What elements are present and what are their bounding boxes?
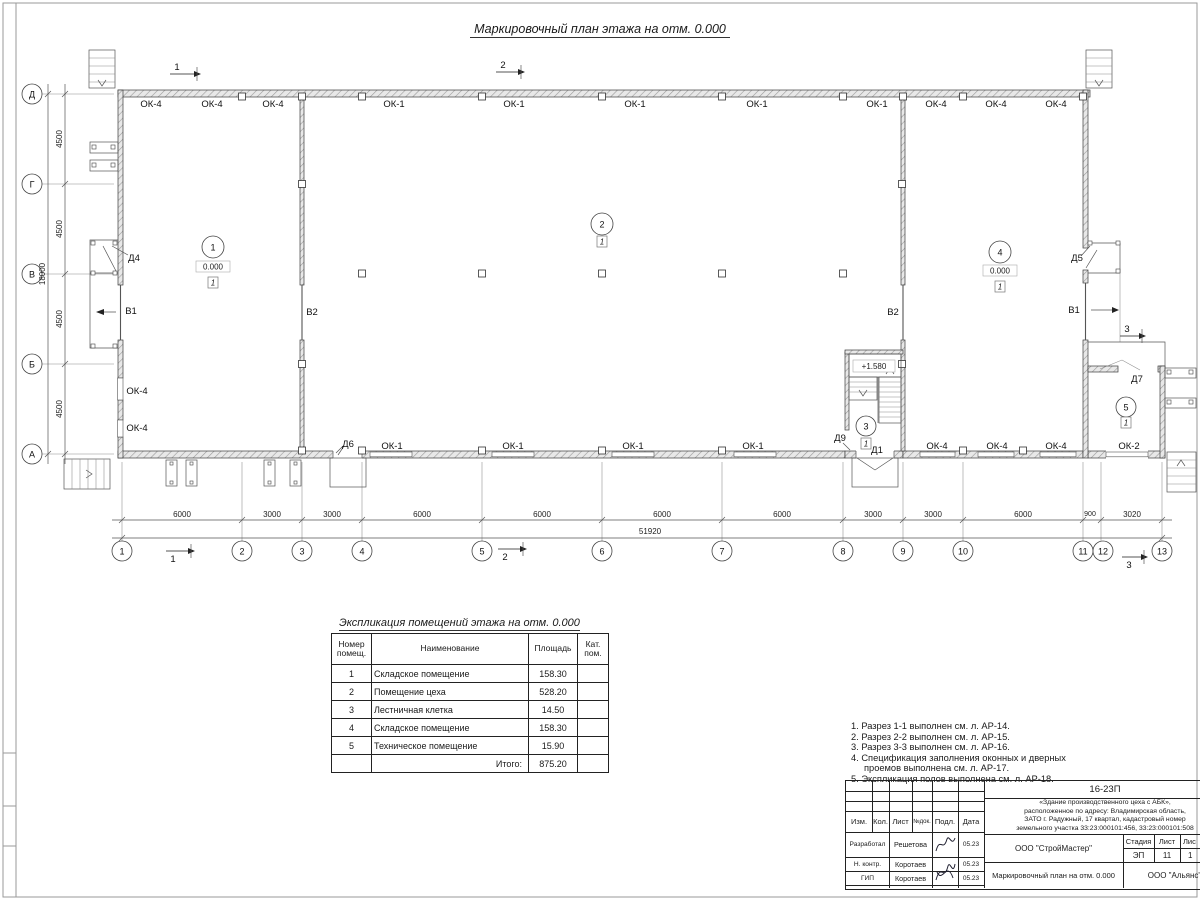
tb-listov-header: Лис bbox=[1180, 834, 1200, 848]
header-cat: Кат. пом. bbox=[578, 634, 609, 665]
cell-num: 4 bbox=[332, 719, 372, 737]
axis-bubbles-bottom: 1 2 3 4 5 6 7 8 9 10 11 12 13 bbox=[112, 541, 1172, 561]
exterior-stair-top-right bbox=[1086, 50, 1112, 88]
total-value: 875.20 bbox=[529, 755, 578, 773]
tb-name: Решетова bbox=[889, 832, 932, 857]
tb-stage-header: Стадия bbox=[1123, 834, 1154, 848]
tb-col-kol: Кол. bbox=[872, 811, 889, 832]
window-label: ОК-1 bbox=[502, 441, 523, 452]
dim-text: 6000 bbox=[653, 510, 671, 519]
cell-num: 5 bbox=[332, 737, 372, 755]
tb-sheet-title: Маркировочный план на отм. 0.000 bbox=[984, 862, 1123, 888]
signature-scribble bbox=[933, 858, 957, 886]
dim-text: 3020 bbox=[1123, 510, 1141, 519]
window-label: ОК-4 bbox=[126, 423, 147, 434]
axis-label: 7 bbox=[719, 547, 724, 557]
door-label: Д5 bbox=[1071, 253, 1083, 264]
room-number: 1 bbox=[210, 243, 215, 253]
door-label: Д6 bbox=[342, 439, 354, 450]
cell-name: Лестничная клетка bbox=[372, 701, 529, 719]
tb-date: 05.23 bbox=[958, 871, 984, 885]
window-label: ОК-1 bbox=[742, 441, 763, 452]
window-label: ОК-4 bbox=[262, 99, 283, 110]
cell-area: 14.50 bbox=[529, 701, 578, 719]
tb-col-ndoc: №док. bbox=[912, 811, 932, 832]
floor-type-mark: 1 bbox=[998, 283, 1002, 292]
title-block: Изм. Кол. Лист №док. Подл. Дата Разработ… bbox=[845, 780, 1200, 890]
axis-label: 6 bbox=[599, 547, 604, 557]
explication-table: Номер помещ. Наименование Площадь Кат. п… bbox=[331, 633, 609, 773]
tb-project-description: «Здание производственного цеха с АБК», р… bbox=[984, 799, 1200, 834]
axis-label: 2 bbox=[239, 547, 244, 557]
window-label: ОК-4 bbox=[126, 386, 147, 397]
dim-text: 4500 bbox=[55, 130, 64, 148]
room-number: 3 bbox=[863, 422, 868, 432]
notes-block: 1. Разрез 1-1 выполнен см. л. АР-14. 2. … bbox=[851, 721, 1066, 785]
dim-text: 900 bbox=[1084, 511, 1096, 518]
tb-description-line: ЗАТО г. Радужный, 17 квартал, кадастровы… bbox=[984, 816, 1200, 825]
section-mark-label: 3 bbox=[1126, 560, 1131, 571]
note-line: 3. Разрез 3-3 выполнен см. л. АР-16. bbox=[851, 742, 1066, 753]
plan-title: Маркировочный план этажа на отм. 0.000 bbox=[0, 22, 1200, 36]
gate-label: В2 bbox=[306, 307, 318, 318]
tb-col-podp: Подл. bbox=[932, 811, 958, 832]
cell-num: 2 bbox=[332, 683, 372, 701]
tb-col-izm: Изм. bbox=[846, 811, 872, 832]
window-label: ОК-1 bbox=[383, 99, 404, 110]
window-label: ОК-2 bbox=[1118, 441, 1139, 452]
dim-text: 6000 bbox=[1014, 510, 1032, 519]
tb-stage-value: ЭП bbox=[1123, 848, 1154, 862]
cell-name: Складское помещение bbox=[372, 665, 529, 683]
axis-label: 5 bbox=[479, 547, 484, 557]
floor-type-mark: 1 bbox=[211, 279, 215, 288]
dim-total-text: 51920 bbox=[639, 527, 662, 536]
cell-area: 528.20 bbox=[529, 683, 578, 701]
axis-label: 12 bbox=[1098, 547, 1108, 557]
cell-cat bbox=[578, 755, 609, 773]
room-markers: 1 0.000 1 2 1 3 1 4 0.000 1 5 1 +1.580 bbox=[196, 213, 1136, 449]
drawing-sheet: 1 2 3 1 2 3 1 2 3 4 5 6 7 8 9 10 11 12 1… bbox=[0, 0, 1200, 900]
axis-label: 4 bbox=[359, 547, 364, 557]
cell-num: 3 bbox=[332, 701, 372, 719]
axis-label: 10 bbox=[958, 547, 968, 557]
window-label: ОК-4 bbox=[201, 99, 222, 110]
tb-role: Разработал bbox=[846, 832, 889, 857]
section-mark-label: 1 bbox=[174, 62, 179, 73]
cell-cat bbox=[578, 719, 609, 737]
dim-text: 6000 bbox=[173, 510, 191, 519]
axis-label: 8 bbox=[840, 547, 845, 557]
cell-num: 1 bbox=[332, 665, 372, 683]
cell-name: Складское помещение bbox=[372, 719, 529, 737]
table-row: 3 Лестничная клетка 14.50 bbox=[332, 701, 609, 719]
table-total-row: Итого: 875.20 bbox=[332, 755, 609, 773]
window-label: ОК-4 bbox=[1045, 99, 1066, 110]
axis-label: Д bbox=[29, 90, 35, 100]
window-label: ОК-4 bbox=[926, 441, 947, 452]
gate-symbols bbox=[96, 283, 1119, 340]
table-row: 2 Помещение цеха 528.20 bbox=[332, 683, 609, 701]
window-label: ОК-1 bbox=[746, 99, 767, 110]
dim-text: 6000 bbox=[533, 510, 551, 519]
window-label: ОК-4 bbox=[140, 99, 161, 110]
axis-label: Г bbox=[30, 180, 35, 190]
exterior-stair-bottom-right bbox=[1167, 452, 1196, 492]
dim-text: 4500 bbox=[55, 400, 64, 418]
cell-num bbox=[332, 755, 372, 773]
floor-type-mark: 1 bbox=[864, 440, 868, 449]
right-vestibule bbox=[1081, 241, 1165, 370]
window-label: ОК-1 bbox=[381, 441, 402, 452]
dim-text: 4500 bbox=[55, 220, 64, 238]
room-number: 5 bbox=[1123, 403, 1128, 413]
axis-label: 9 bbox=[900, 547, 905, 557]
cell-name: Помещение цеха bbox=[372, 683, 529, 701]
room-number: 2 bbox=[599, 220, 604, 230]
exterior-elements bbox=[64, 50, 1196, 492]
floor-type-mark: 1 bbox=[1124, 419, 1128, 428]
cell-cat bbox=[578, 701, 609, 719]
tb-role: ГИП bbox=[846, 871, 889, 885]
window-label: ОК-4 bbox=[986, 441, 1007, 452]
tb-org2: ООО "Альянс" bbox=[1123, 862, 1200, 888]
axis-label: Б bbox=[29, 360, 35, 370]
tb-date: 05.23 bbox=[958, 832, 984, 857]
gate-label: В1 bbox=[125, 306, 137, 317]
tb-description-line: «Здание производственного цеха с АБК», bbox=[984, 799, 1200, 808]
cell-cat bbox=[578, 665, 609, 683]
table-row: 1 Складское помещение 158.30 bbox=[332, 665, 609, 683]
tb-name: Коротаев bbox=[889, 871, 932, 885]
explication-title-text: Экспликация помещений этажа на отм. 0.00… bbox=[339, 617, 580, 631]
note-line: 4. Спецификация заполнения оконных и две… bbox=[851, 753, 1066, 764]
window-label: ОК-1 bbox=[866, 99, 887, 110]
tb-name: Коротаев bbox=[889, 857, 932, 871]
tb-description-line: расположенное по адресу: Владимирская об… bbox=[984, 808, 1200, 817]
window-label: ОК-1 bbox=[503, 99, 524, 110]
dim-text: 3000 bbox=[864, 510, 882, 519]
window-label: ОК-1 bbox=[624, 99, 645, 110]
columns bbox=[239, 93, 1087, 454]
room-number: 4 bbox=[997, 248, 1002, 258]
tb-listov-value: 1 bbox=[1180, 848, 1200, 862]
section-mark-label: 2 bbox=[502, 552, 507, 563]
tb-doc-number: 16-23П bbox=[984, 781, 1200, 798]
gate-label: В2 bbox=[887, 307, 899, 318]
signature-scribble bbox=[933, 833, 957, 856]
dim-text: 3000 bbox=[263, 510, 281, 519]
level-mark: 0.000 bbox=[203, 263, 224, 272]
tb-col-data: Дата bbox=[958, 811, 984, 832]
table-header-row: Номер помещ. Наименование Площадь Кат. п… bbox=[332, 634, 609, 665]
axis-label: 3 bbox=[299, 547, 304, 557]
tb-list-header: Лист bbox=[1154, 834, 1180, 848]
axis-label: А bbox=[29, 450, 35, 460]
cell-cat bbox=[578, 683, 609, 701]
tb-org1: ООО "СтройМастер" bbox=[984, 834, 1123, 862]
window-label: ОК-4 bbox=[985, 99, 1006, 110]
exterior-stair-bottom-left bbox=[64, 459, 110, 489]
plan-title-text: Маркировочный план этажа на отм. 0.000 bbox=[470, 22, 730, 38]
tb-description-line: земельного участка 33:23:000101:456, 33:… bbox=[984, 825, 1200, 834]
explication-title: Экспликация помещений этажа на отм. 0.00… bbox=[331, 617, 588, 629]
tb-list-value: 11 bbox=[1154, 848, 1180, 862]
dim-total-text: 18000 bbox=[38, 262, 47, 285]
explication-table-block: Экспликация помещений этажа на отм. 0.00… bbox=[331, 617, 588, 773]
cell-name: Техническое помещение bbox=[372, 737, 529, 755]
table-row: 4 Складское помещение 158.30 bbox=[332, 719, 609, 737]
cell-area: 158.30 bbox=[529, 665, 578, 683]
floor-type-mark: 1 bbox=[600, 238, 604, 247]
axis-label: 11 bbox=[1078, 547, 1087, 557]
stair-level-mark: +1.580 bbox=[862, 362, 887, 371]
level-mark: 0.000 bbox=[990, 267, 1011, 276]
window-label: ОК-4 bbox=[1045, 441, 1066, 452]
door-labels: Д4 Д5 Д6 Д7 Д9 Д1 В1 В1 В2 В2 bbox=[125, 253, 1143, 456]
tb-date: 05.23 bbox=[958, 857, 984, 871]
tb-role: Н. контр. bbox=[846, 857, 889, 871]
axis-label: 1 bbox=[119, 547, 124, 557]
note-line: 1. Разрез 1-1 выполнен см. л. АР-14. bbox=[851, 721, 1066, 732]
axis-label: В bbox=[29, 270, 35, 280]
header-name: Наименование bbox=[372, 634, 529, 665]
tb-col-list: Лист bbox=[889, 811, 912, 832]
dim-text: 6000 bbox=[773, 510, 791, 519]
dimension-extension-lines bbox=[42, 94, 1162, 541]
dimension-lines bbox=[45, 84, 1172, 541]
axis-label: 13 bbox=[1157, 547, 1167, 557]
dim-text: 3000 bbox=[924, 510, 942, 519]
header-area: Площадь bbox=[529, 634, 578, 665]
window-label: ОК-1 bbox=[622, 441, 643, 452]
cell-area: 158.30 bbox=[529, 719, 578, 737]
cell-area: 15.90 bbox=[529, 737, 578, 755]
section-mark-label: 1 bbox=[170, 554, 175, 565]
total-label: Итого: bbox=[372, 755, 529, 773]
dim-text: 6000 bbox=[413, 510, 431, 519]
dimension-texts: 6000 3000 3000 6000 6000 6000 6000 3000 … bbox=[38, 130, 1141, 536]
door-label: Д4 bbox=[128, 253, 140, 264]
note-line: проемов выполнена см. л. АР-17. bbox=[864, 763, 1066, 774]
section-mark-label: 3 bbox=[1124, 324, 1129, 335]
note-line: 2. Разрез 2-2 выполнен см. л. АР-15. bbox=[851, 732, 1066, 743]
door-label: Д9 bbox=[834, 433, 846, 444]
cell-cat bbox=[578, 737, 609, 755]
window-label: ОК-4 bbox=[925, 99, 946, 110]
header-num: Номер помещ. bbox=[332, 634, 372, 665]
door-label: Д7 bbox=[1131, 374, 1143, 385]
door-label: Д1 bbox=[871, 445, 883, 456]
gate-label: В1 bbox=[1068, 305, 1080, 316]
dim-text: 4500 bbox=[55, 310, 64, 328]
table-row: 5 Техническое помещение 15.90 bbox=[332, 737, 609, 755]
exterior-stair-top-left bbox=[89, 50, 115, 88]
dim-text: 3000 bbox=[323, 510, 341, 519]
section-mark-label: 2 bbox=[500, 60, 505, 71]
